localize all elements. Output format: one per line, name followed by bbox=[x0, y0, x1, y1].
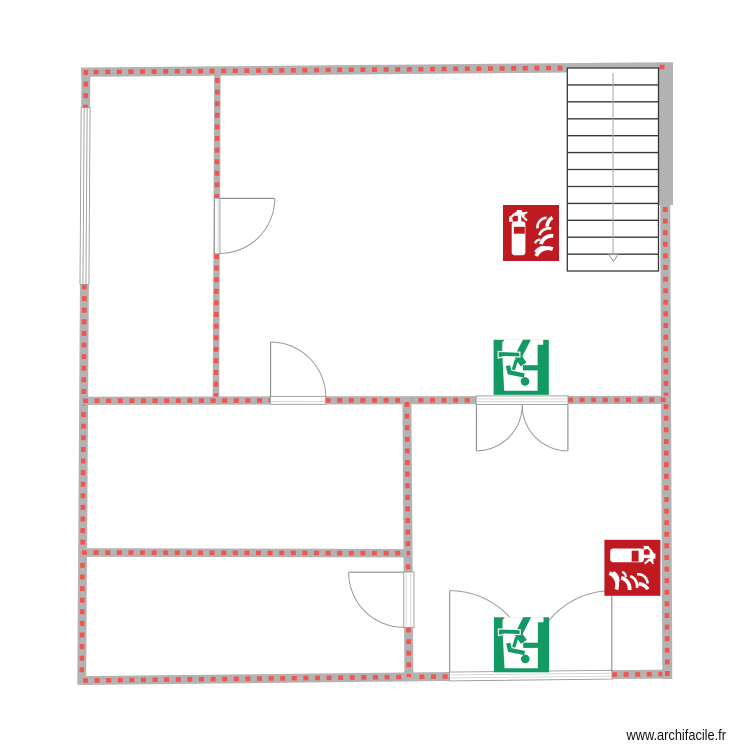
svg-text:www.archifacile.fr: www.archifacile.fr bbox=[626, 727, 726, 744]
